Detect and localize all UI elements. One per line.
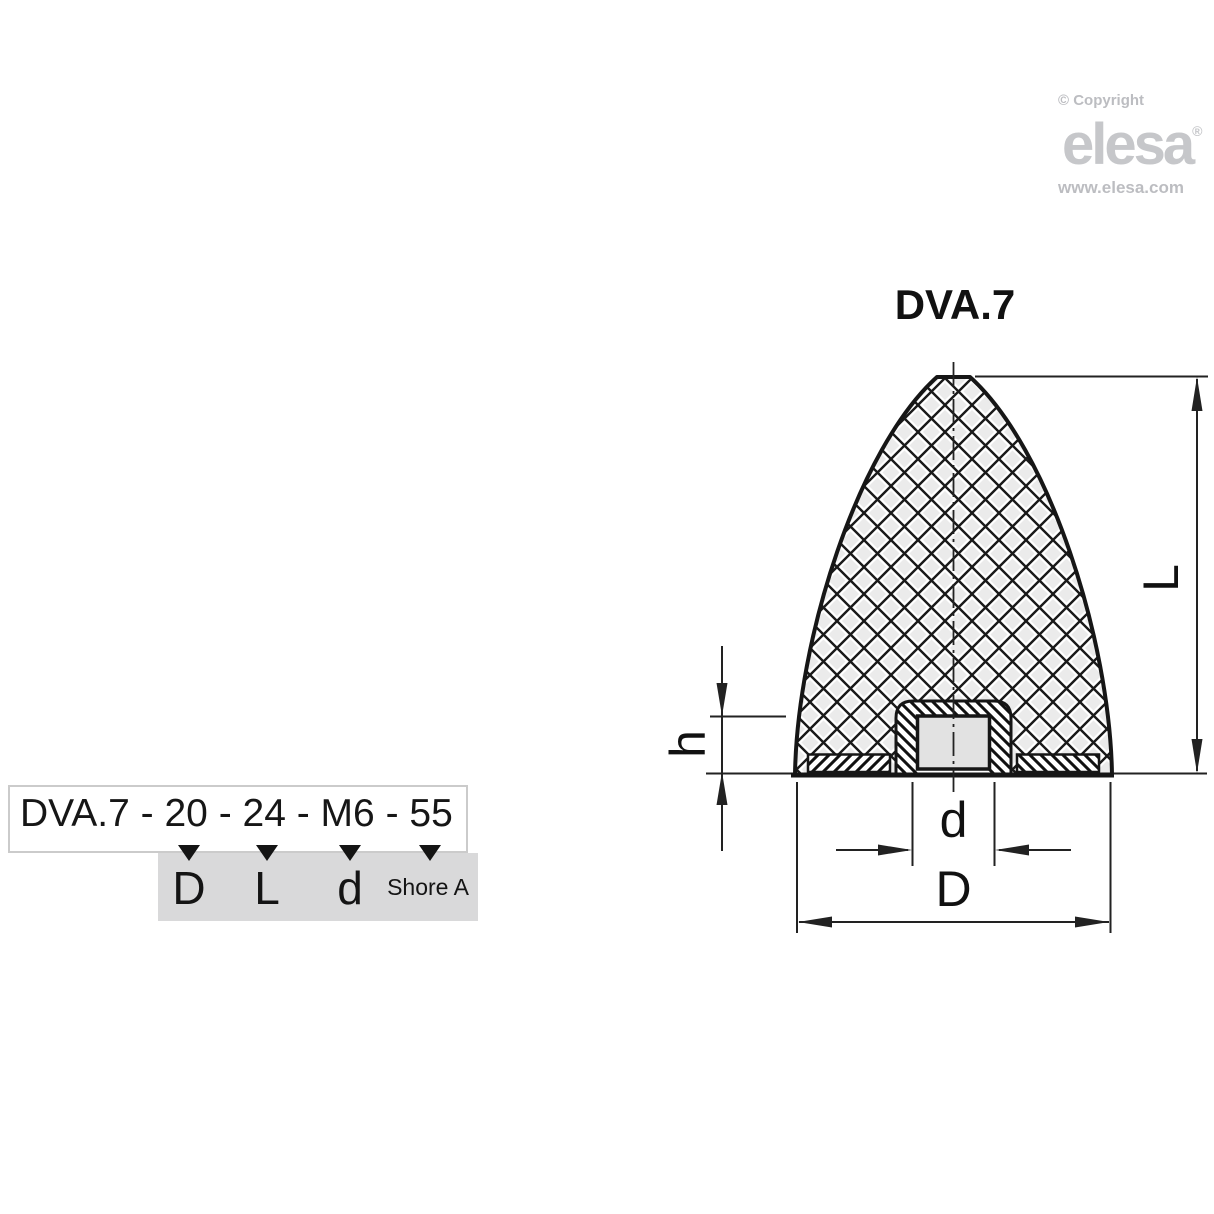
dim-label-h: h [660, 730, 716, 758]
dim-label-D: D [935, 861, 971, 917]
dim-h [710, 646, 786, 851]
order-code-text: DVA.7 - 20 - 24 - M6 - 55 [20, 792, 453, 836]
dim-label-d: d [940, 792, 968, 848]
copyright-text: © Copyright [1058, 92, 1144, 109]
registered-mark-icon: ® [1192, 123, 1202, 139]
product-title: DVA.7 [895, 281, 1016, 329]
elesa-logo: elesa® [1062, 116, 1202, 174]
legend-label-shore-a: Shore A [387, 874, 469, 901]
arrow-down-icon [419, 845, 441, 861]
legend-label-d: d [337, 861, 363, 915]
arrow-down-icon [178, 845, 200, 861]
technical-drawing: L h d D [640, 330, 1214, 960]
arrow-down-icon [339, 845, 361, 861]
legend-label-D: D [172, 861, 205, 915]
logo-text: elesa [1062, 112, 1192, 177]
legend-label-L: L [254, 861, 280, 915]
metal-washer-left [808, 755, 890, 773]
website-url: www.elesa.com [1058, 178, 1184, 198]
metal-washer-right [1017, 755, 1099, 773]
arrow-down-icon [256, 845, 278, 861]
dim-label-L: L [1133, 564, 1189, 592]
